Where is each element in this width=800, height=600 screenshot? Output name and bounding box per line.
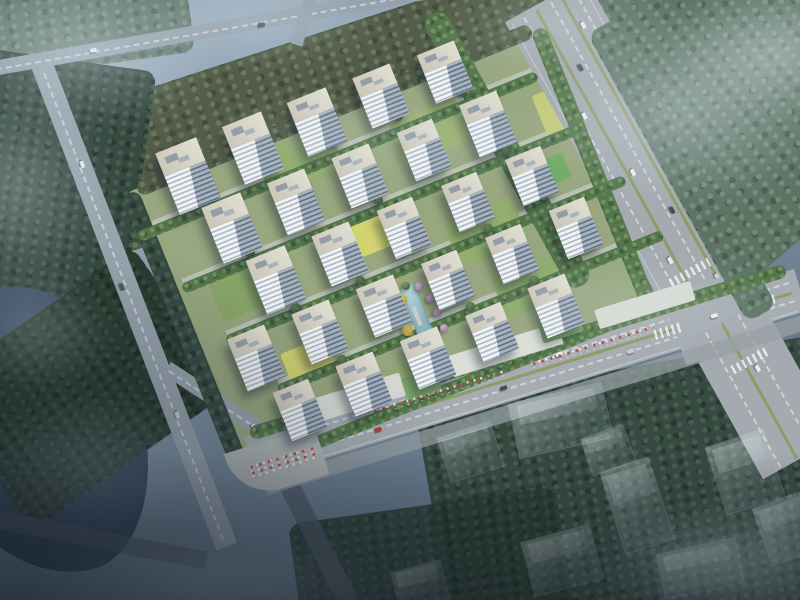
aerial-rendering-canvas: Aerial perspective architectural renderi…: [0, 0, 800, 600]
atmosphere-tint: [0, 0, 800, 600]
